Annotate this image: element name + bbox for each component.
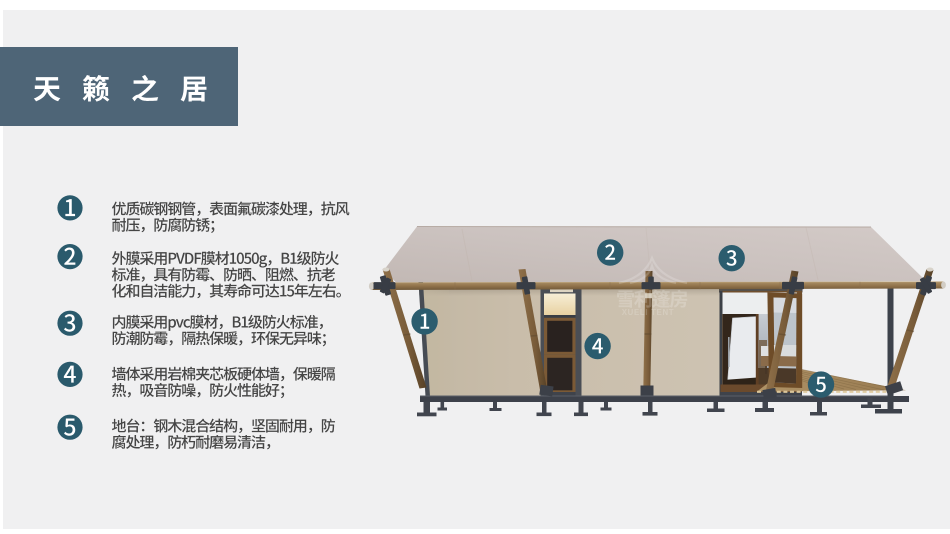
svg-text:XUELI TENT: XUELI TENT [622,308,674,317]
